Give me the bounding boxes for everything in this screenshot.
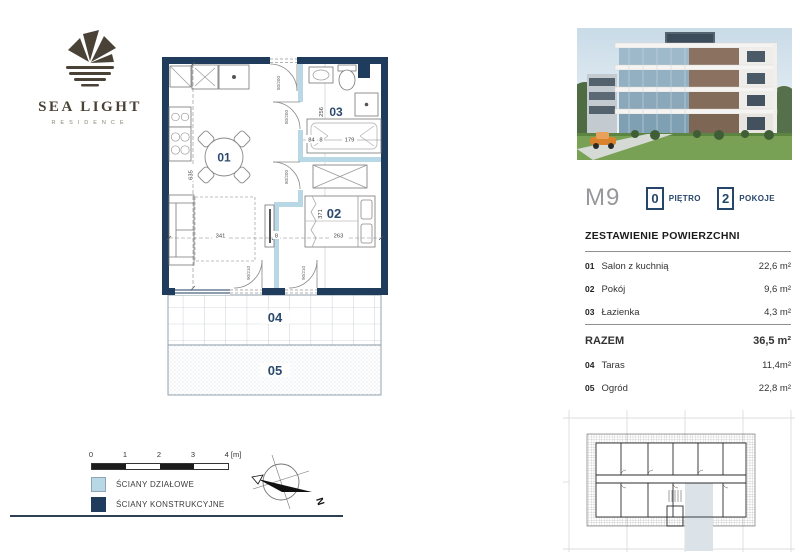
north-compass-icon: N — [250, 452, 328, 516]
area-row-03: 03 Łazienka 4,3 m² — [585, 301, 791, 324]
row-name: Taras — [601, 360, 762, 371]
room-label-01: 01 — [217, 151, 231, 165]
total-area: 36,5 m² — [753, 335, 791, 347]
room-label-05: 05 — [268, 363, 282, 378]
scale-tick-0: 0 — [89, 450, 93, 459]
row-area: 11,4m² — [762, 360, 791, 371]
dim-635: 635 — [189, 170, 195, 180]
row-area: 9,6 m² — [764, 284, 791, 295]
window — [175, 288, 230, 295]
floor-plan: 341 8 263 84 8 179 635 371 256 80/200 80… — [162, 57, 388, 397]
area-row-05: 05 Ogród 22,8 m² — [585, 377, 791, 400]
room-label-03: 03 — [329, 105, 343, 119]
structural-wall-swatch — [91, 497, 106, 512]
dim-256: 256 — [319, 107, 325, 117]
divider — [585, 324, 791, 325]
door-label-terrace2: 90/210 — [301, 266, 306, 280]
room-label-04: 04 — [268, 310, 283, 325]
dim-8: 8 — [275, 234, 278, 240]
sea-light-logo-icon — [52, 24, 128, 90]
washbasin — [309, 67, 333, 83]
row-number: 03 — [585, 307, 594, 317]
row-name: Salon z kuchnią — [601, 261, 758, 272]
rooms-number-box: 2 — [717, 187, 734, 210]
dim-263: 263 — [334, 234, 344, 240]
area-table: ZESTAWIENIE POWIERZCHNI 01 Salon z kuchn… — [585, 230, 791, 400]
scale-bar — [91, 463, 229, 470]
dim-179: 179 — [345, 138, 355, 144]
scale-tick-2: 2 — [157, 450, 161, 459]
row-area: 22,6 m² — [759, 261, 791, 272]
door-label-bath: 80/200 — [284, 110, 289, 124]
row-number: 01 — [585, 261, 594, 271]
row-name: Pokój — [601, 284, 764, 295]
legend-partition-label: ŚCIANY DZIAŁOWE — [116, 480, 194, 489]
wardrobe — [313, 165, 367, 188]
dim-371: 371 — [318, 209, 324, 219]
partition-wall-swatch — [91, 477, 106, 492]
door-label-entrance: 80/200 — [276, 76, 281, 90]
row-number: 04 — [585, 360, 594, 370]
legend-structural-label: ŚCIANY KONSTRUKCYJNE — [116, 500, 225, 509]
north-label: N — [313, 497, 326, 507]
floor-number-box: 0 — [646, 187, 663, 210]
door-label-room: 80/200 — [284, 170, 289, 184]
dim-84: 84 — [308, 138, 315, 144]
door-label-terrace1: 90/210 — [246, 266, 251, 280]
building-photo — [577, 28, 792, 160]
row-number: 02 — [585, 284, 594, 294]
floor-label: PIĘTRO — [669, 194, 701, 203]
total-row: RAZEM 36,5 m² — [585, 328, 791, 354]
scale-tick-3: 3 — [191, 450, 195, 459]
legend-structural: ŚCIANY KONSTRUKCYJNE — [91, 497, 225, 512]
rooms-label: POKOJE — [739, 194, 775, 203]
toilet — [338, 65, 356, 90]
tv-unit — [265, 205, 274, 247]
area-row-01: 01 Salon z kuchnią 22,6 m² — [585, 255, 791, 278]
scale-and-legend: 0 1 2 3 4 [m] ŚCIANY DZIAŁOWE ŚCIANY KON… — [88, 450, 258, 520]
brochure-page: SEA LIGHT RESIDENCE — [0, 0, 800, 560]
row-name: Ogród — [601, 383, 758, 394]
scale-tick-1: 1 — [123, 450, 127, 459]
sofa — [169, 195, 194, 265]
row-number: 05 — [585, 383, 594, 393]
area-row-02: 02 Pokój 9,6 m² — [585, 278, 791, 301]
dim-341: 341 — [216, 234, 226, 240]
area-table-title: ZESTAWIENIE POWIERZCHNI — [585, 230, 791, 242]
area-row-04: 04 Taras 11,4m² — [585, 354, 791, 377]
scale-tick-4: 4 [m] — [225, 450, 242, 459]
room-label-02: 02 — [327, 206, 341, 221]
logo-title: SEA LIGHT — [28, 99, 152, 116]
logo: SEA LIGHT RESIDENCE — [28, 24, 152, 126]
row-area: 4,3 m² — [764, 307, 791, 318]
legend-partition: ŚCIANY DZIAŁOWE — [91, 477, 194, 492]
total-label: RAZEM — [585, 335, 753, 347]
unit-code: M9 — [585, 184, 620, 212]
washing-machine — [355, 93, 378, 116]
sofa-bed-zone — [195, 197, 255, 261]
divider — [585, 251, 791, 252]
dim-8b: 8 — [319, 138, 322, 144]
logo-subtitle: RESIDENCE — [28, 120, 152, 126]
unit-header: M9 0 PIĘTRO 2 POKOJE — [585, 184, 791, 212]
key-plan — [563, 406, 795, 554]
footer-divider — [10, 515, 343, 517]
row-name: Łazienka — [601, 307, 764, 318]
row-area: 22,8 m² — [759, 383, 791, 394]
